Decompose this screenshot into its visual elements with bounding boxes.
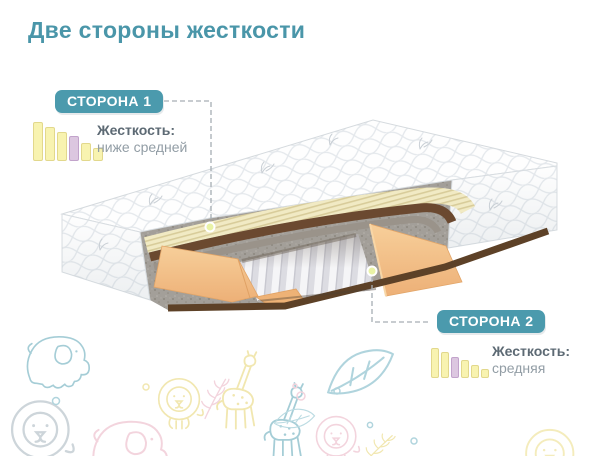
fern-doodle-icon <box>202 379 229 418</box>
side-1-firmness-bars <box>33 121 103 161</box>
side-2-marker-icon <box>368 267 377 276</box>
firmness-bar <box>45 127 55 161</box>
firmness-bar <box>81 143 91 161</box>
side-2-badge: СТОРОНА 2 <box>437 310 545 333</box>
side-1-firmness-text: Жесткость: ниже средней <box>97 122 187 156</box>
giraffe-doodle-icon <box>217 351 256 429</box>
side-2-firmness-label: Жесткость: <box>492 343 570 360</box>
side-2-firmness-value: средняя <box>492 360 570 377</box>
elephant-doodle-icon <box>93 422 167 456</box>
dot-doodles <box>53 384 418 444</box>
firmness-bar <box>431 348 439 378</box>
mattress-illustration <box>0 0 608 456</box>
side-1-firmness-value: ниже средней <box>97 139 187 156</box>
firmness-bar <box>57 132 67 161</box>
firmness-bar <box>471 365 479 378</box>
firmness-bar <box>33 122 43 161</box>
firmness-bar <box>461 360 469 378</box>
lion-doodle-icon <box>159 379 203 429</box>
side-2-firmness-text: Жесткость: средняя <box>492 343 570 377</box>
side-1-badge: СТОРОНА 1 <box>55 90 163 113</box>
firmness-bar <box>481 369 489 378</box>
firmness-bar <box>451 357 459 378</box>
elephant-doodle-icon <box>27 337 89 388</box>
infographic-canvas: Две стороны жесткости СТОРОНА 1 СТОРОНА … <box>0 0 608 456</box>
side-2-firmness-bars <box>431 347 489 378</box>
fern-doodle-icon <box>362 429 395 456</box>
lion-doodle-icon <box>12 401 74 456</box>
firmness-bar <box>441 352 449 378</box>
lion-doodle-icon <box>316 417 359 456</box>
side-1-marker-icon <box>206 223 215 232</box>
side-1-firmness-label: Жесткость: <box>97 122 187 139</box>
lion-doodle-icon <box>526 430 578 456</box>
page-title: Две стороны жесткости <box>28 17 305 44</box>
leaf-doodle-icon <box>324 348 396 394</box>
firmness-bar <box>69 136 79 161</box>
